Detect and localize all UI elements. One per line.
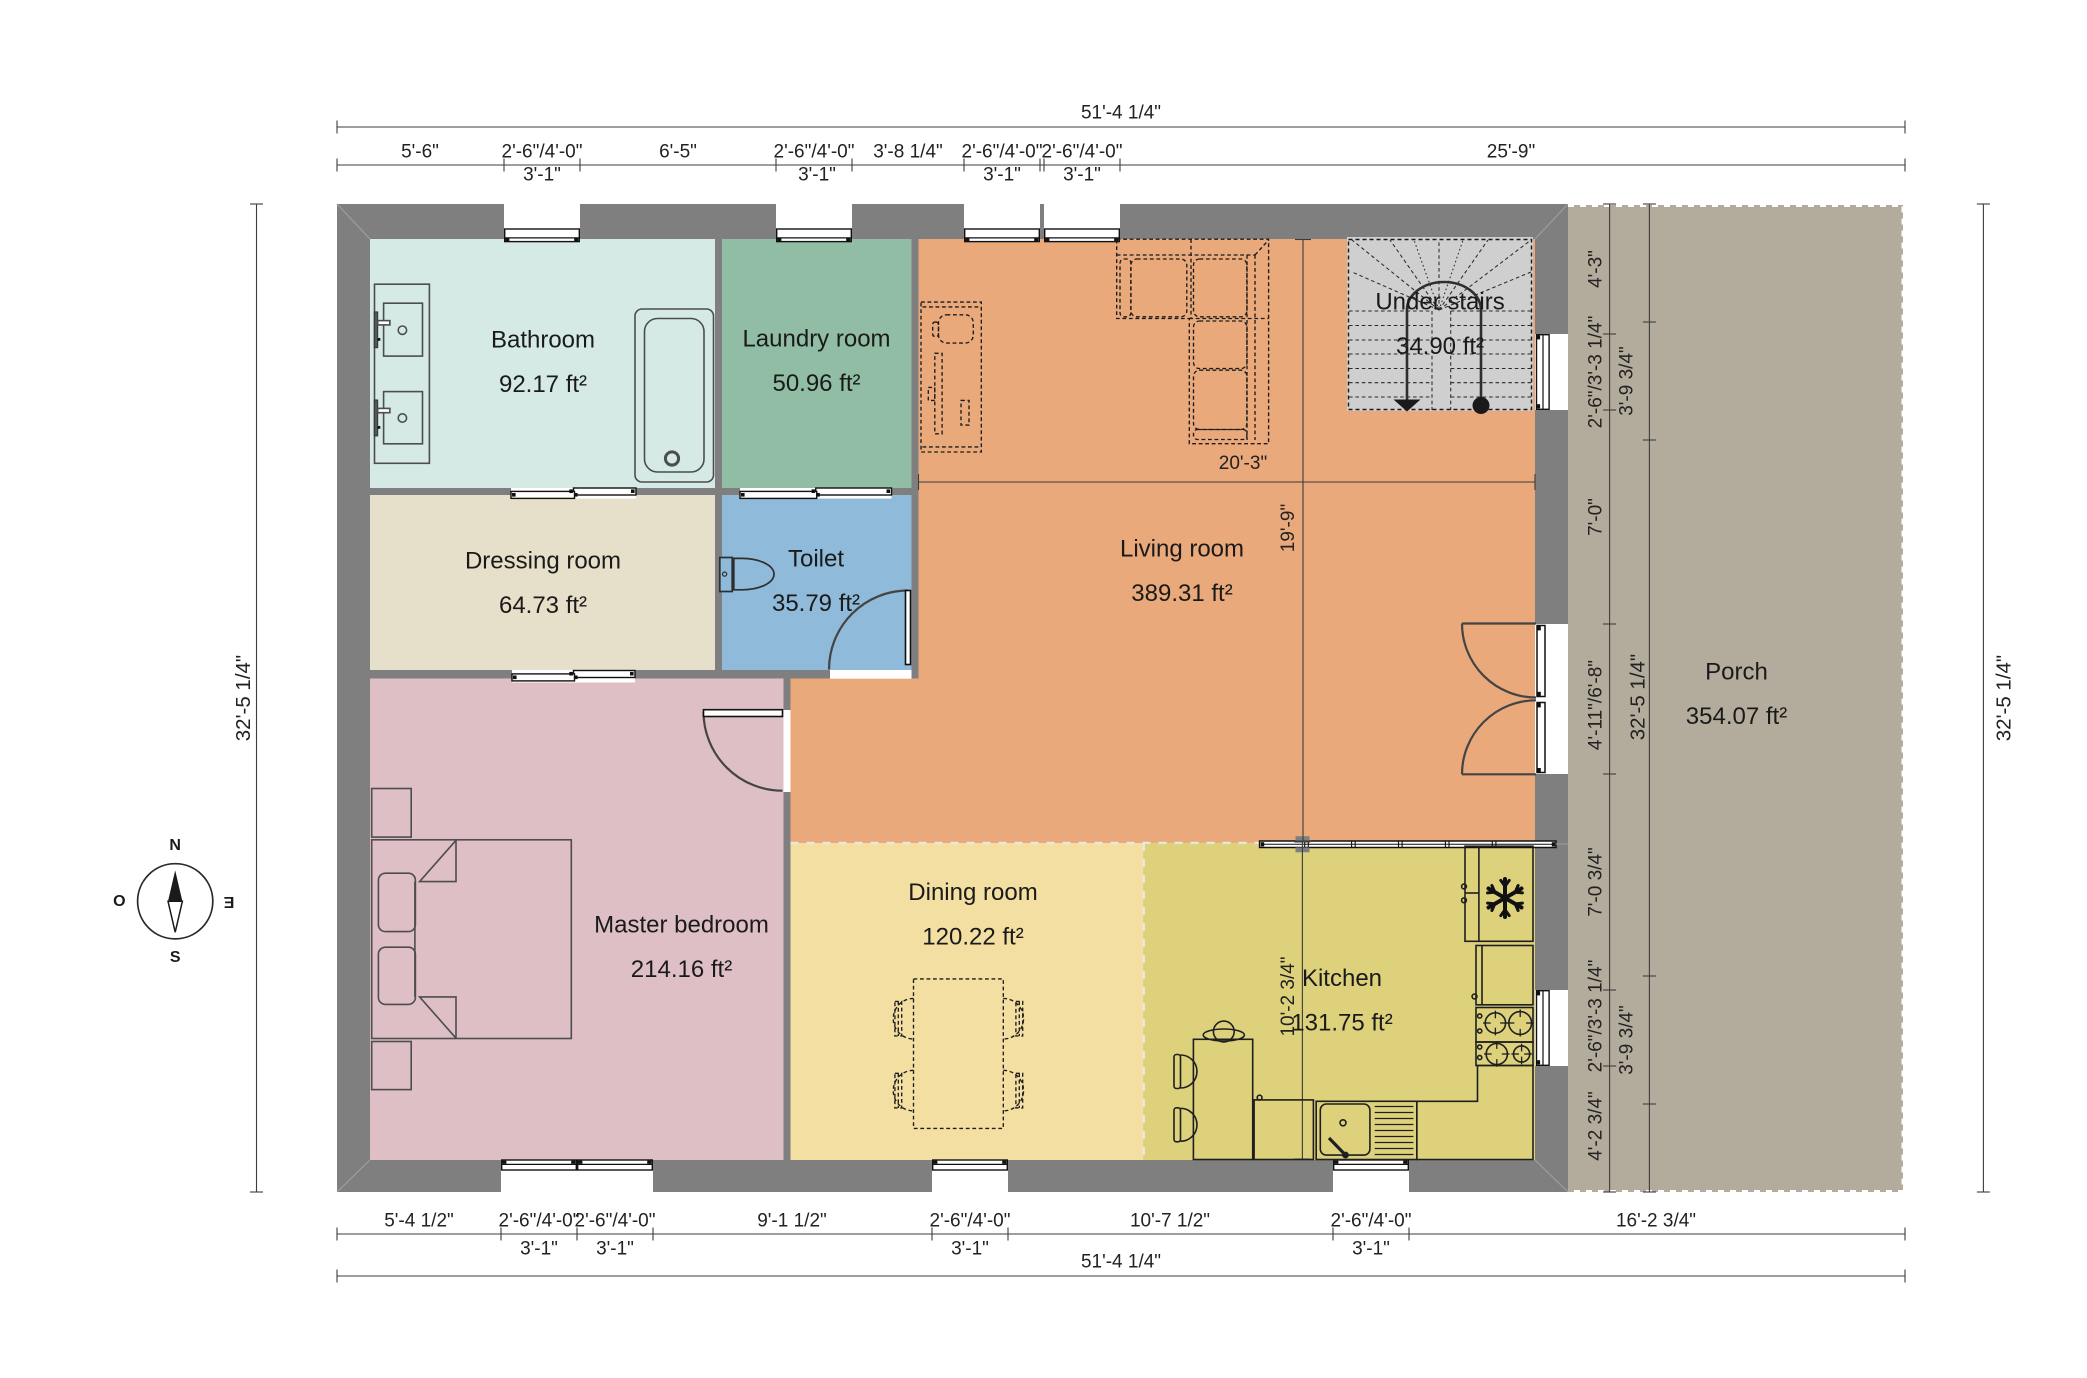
svg-text:2'-6"/3'-3 1/4": 2'-6"/3'-3 1/4" <box>1586 960 1607 1073</box>
svg-text:51'-4 1/4": 51'-4 1/4" <box>1081 103 1161 124</box>
svg-text:25'-9": 25'-9" <box>1487 142 1535 163</box>
svg-text:4'-2 3/4": 4'-2 3/4" <box>1586 1091 1607 1161</box>
svg-text:34.90 ft²: 34.90 ft² <box>1396 333 1484 360</box>
svg-text:3'-8 1/4": 3'-8 1/4" <box>873 142 943 163</box>
svg-text:2'-6"/4'-0": 2'-6"/4'-0" <box>962 142 1043 163</box>
svg-text:2'-6"/4'-0": 2'-6"/4'-0" <box>502 142 583 163</box>
svg-text:32'-5 1/4": 32'-5 1/4" <box>232 655 255 741</box>
svg-text:3'-1": 3'-1" <box>596 1239 634 1260</box>
svg-text:10'-7 1/2": 10'-7 1/2" <box>1130 1211 1210 1232</box>
svg-text:92.17 ft²: 92.17 ft² <box>499 371 587 398</box>
svg-text:Master bedroom: Master bedroom <box>594 912 769 939</box>
svg-text:2'-6"/4'-0": 2'-6"/4'-0" <box>1331 1211 1412 1232</box>
svg-text:N: N <box>169 837 181 854</box>
svg-text:4'-3": 4'-3" <box>1586 250 1607 288</box>
svg-text:2'-6"/4'-0": 2'-6"/4'-0" <box>499 1211 580 1232</box>
svg-text:Kitchen: Kitchen <box>1302 965 1382 992</box>
svg-text:120.22 ft²: 120.22 ft² <box>922 924 1023 951</box>
svg-text:3'-1": 3'-1" <box>1063 165 1101 186</box>
svg-text:Bathroom: Bathroom <box>491 327 595 354</box>
svg-text:Dressing room: Dressing room <box>465 548 621 575</box>
svg-text:2'-6"/4'-0": 2'-6"/4'-0" <box>774 142 855 163</box>
svg-text:32'-5 1/4": 32'-5 1/4" <box>1627 654 1650 740</box>
svg-text:389.31 ft²: 389.31 ft² <box>1131 580 1232 607</box>
svg-text:Under stairs: Under stairs <box>1375 289 1504 316</box>
svg-text:3'-9 3/4": 3'-9 3/4" <box>1617 1005 1638 1075</box>
svg-text:214.16 ft²: 214.16 ft² <box>631 956 732 983</box>
svg-text:3'-9 3/4": 3'-9 3/4" <box>1617 346 1638 416</box>
svg-text:Toilet: Toilet <box>788 546 844 573</box>
svg-text:E: E <box>223 893 234 910</box>
svg-text:2'-6"/4'-0": 2'-6"/4'-0" <box>575 1211 656 1232</box>
svg-text:35.79 ft²: 35.79 ft² <box>772 590 860 617</box>
svg-text:3'-1": 3'-1" <box>1352 1239 1390 1260</box>
svg-text:354.07 ft²: 354.07 ft² <box>1686 703 1787 730</box>
svg-text:16'-2 3/4": 16'-2 3/4" <box>1616 1211 1696 1232</box>
svg-text:64.73 ft²: 64.73 ft² <box>499 592 587 619</box>
svg-text:2'-6"/4'-0": 2'-6"/4'-0" <box>1042 142 1123 163</box>
svg-text:32'-5 1/4": 32'-5 1/4" <box>1993 655 2016 741</box>
svg-text:3'-1": 3'-1" <box>798 165 836 186</box>
svg-text:S: S <box>170 949 181 966</box>
svg-text:3'-1": 3'-1" <box>983 165 1021 186</box>
svg-text:Dining room: Dining room <box>908 879 1037 906</box>
svg-text:Porch: Porch <box>1705 659 1768 686</box>
svg-text:Living room: Living room <box>1120 536 1244 563</box>
svg-text:7'-0 3/4": 7'-0 3/4" <box>1586 847 1607 917</box>
svg-text:Laundry room: Laundry room <box>742 326 890 353</box>
svg-text:5'-4 1/2": 5'-4 1/2" <box>384 1211 454 1232</box>
svg-text:9'-1 1/2": 9'-1 1/2" <box>757 1211 827 1232</box>
svg-text:7'-0": 7'-0" <box>1586 498 1607 536</box>
svg-text:3'-1": 3'-1" <box>951 1239 989 1260</box>
svg-text:19'-9": 19'-9" <box>1278 504 1299 552</box>
svg-text:5'-6": 5'-6" <box>401 142 439 163</box>
svg-text:131.75 ft²: 131.75 ft² <box>1291 1010 1392 1037</box>
svg-text:50.96 ft²: 50.96 ft² <box>772 370 860 397</box>
svg-text:20'-3": 20'-3" <box>1219 453 1267 474</box>
svg-text:3'-1": 3'-1" <box>523 165 561 186</box>
svg-text:3'-1": 3'-1" <box>520 1239 558 1260</box>
svg-text:51'-4 1/4": 51'-4 1/4" <box>1081 1252 1161 1273</box>
svg-text:O: O <box>113 893 125 910</box>
svg-text:2'-6"/4'-0": 2'-6"/4'-0" <box>930 1211 1011 1232</box>
svg-text:6'-5": 6'-5" <box>659 142 697 163</box>
svg-text:2'-6"/3'-3 1/4": 2'-6"/3'-3 1/4" <box>1586 316 1607 429</box>
svg-text:4'-11"/6'-8": 4'-11"/6'-8" <box>1586 660 1607 750</box>
